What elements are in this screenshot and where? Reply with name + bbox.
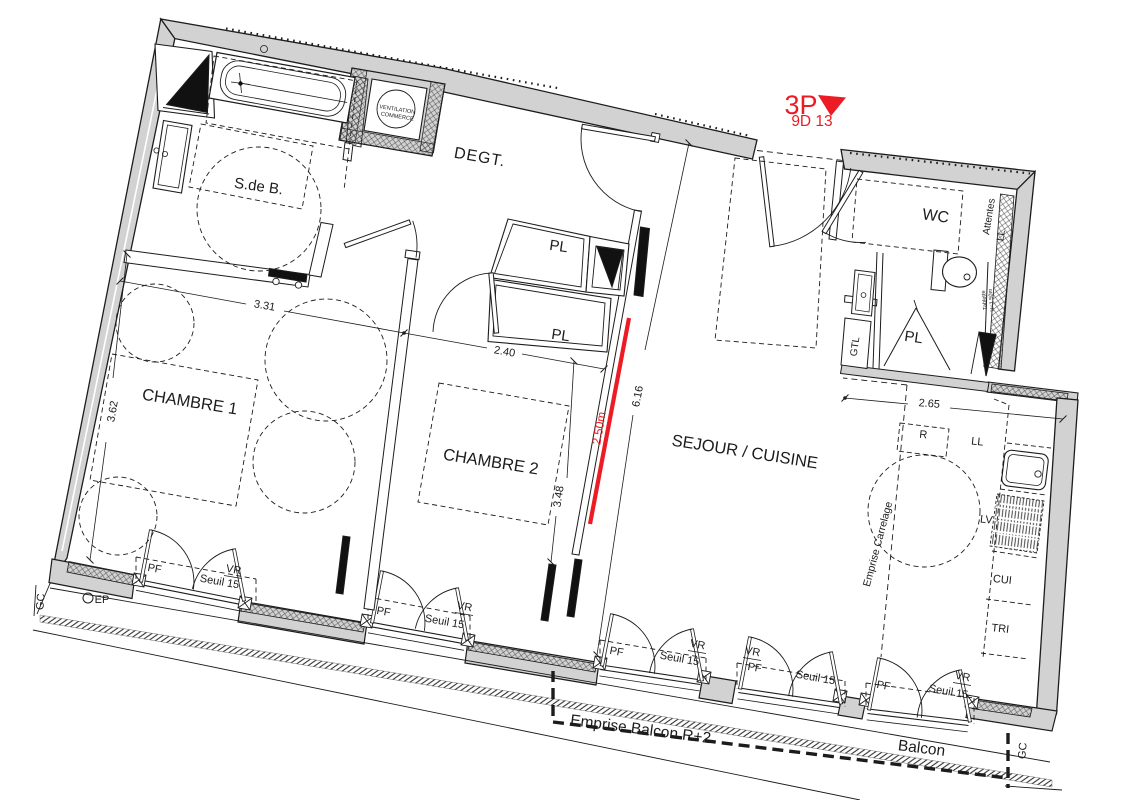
- svg-text:LV: LV: [979, 513, 993, 526]
- svg-text:R: R: [919, 429, 928, 442]
- svg-text:GC: GC: [1016, 742, 1029, 760]
- svg-text:PF: PF: [747, 661, 763, 675]
- svg-text:PF: PF: [876, 679, 892, 693]
- svg-text:PL: PL: [903, 328, 924, 347]
- svg-text:EP: EP: [95, 594, 110, 606]
- svg-text:9D 13: 9D 13: [791, 113, 832, 130]
- svg-text:2.65: 2.65: [918, 397, 940, 411]
- svg-text:GC: GC: [34, 593, 47, 611]
- svg-text:PL: PL: [548, 237, 569, 256]
- svg-text:LL: LL: [971, 435, 984, 448]
- svg-text:TRI: TRI: [991, 622, 1010, 636]
- svg-text:PF: PF: [376, 605, 392, 619]
- svg-text:PL: PL: [550, 326, 571, 345]
- svg-text:PF: PF: [147, 562, 163, 576]
- svg-text:CUI: CUI: [992, 573, 1012, 587]
- svg-text:PF: PF: [609, 645, 625, 659]
- svg-text:LL: LL: [995, 229, 1008, 242]
